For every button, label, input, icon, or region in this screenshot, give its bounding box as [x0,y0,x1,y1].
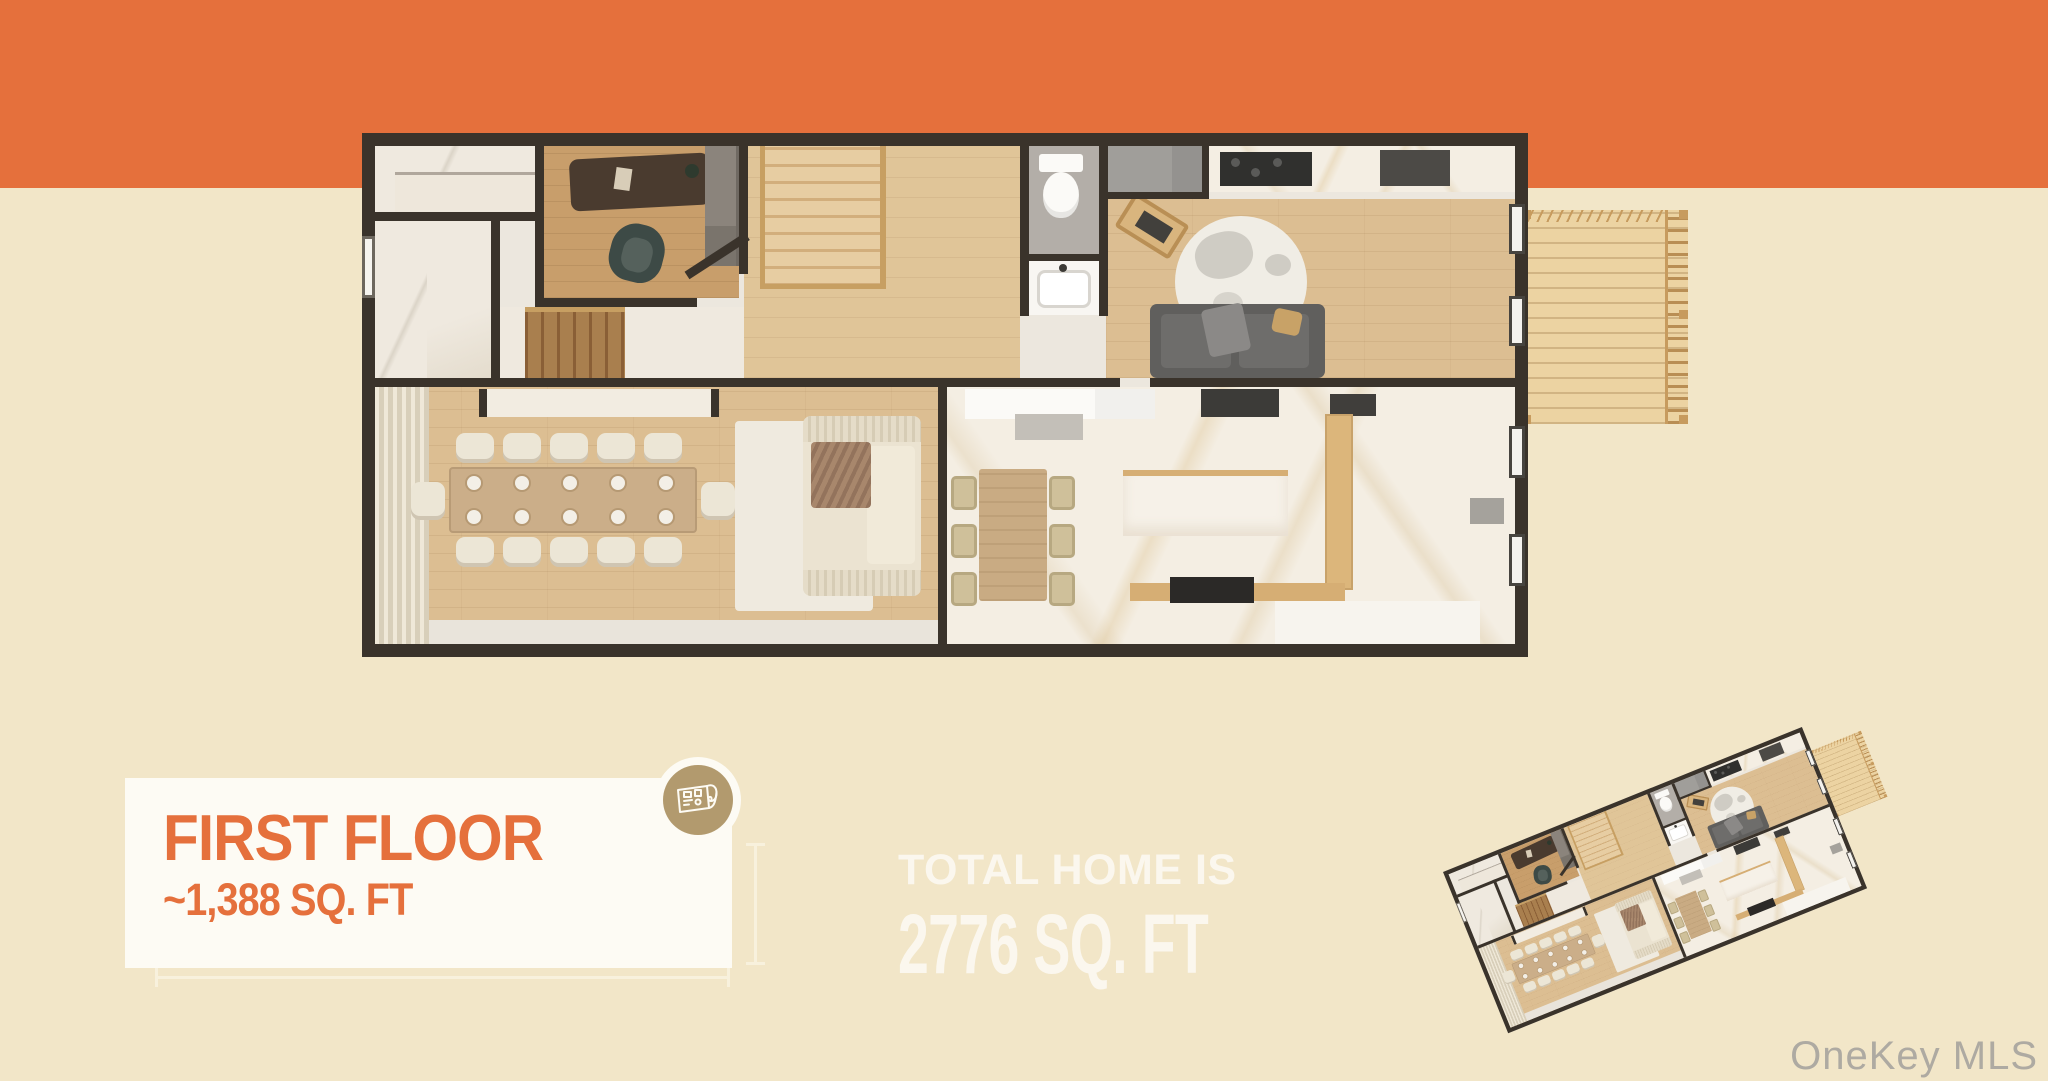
dining-chair [503,433,541,463]
closet [1106,146,1202,192]
dining-chair [456,433,494,463]
dining-chair [644,433,682,463]
toilet-tank [1039,154,1083,172]
sofa-blanket [811,442,871,508]
kitchen-chair [951,524,977,558]
dining-chair [597,537,635,567]
kitchen-table [979,469,1047,601]
kitchen-chair [1049,524,1075,558]
floor-plan [362,133,1528,657]
kitchen-chair [951,572,977,606]
entry-window [362,236,375,298]
sofa-pillow [1746,810,1757,819]
blueprint-badge [655,757,741,843]
dining-chair [550,433,588,463]
office-desk [569,152,712,211]
desk-plant [685,164,699,178]
wall-tv [1470,498,1504,524]
desk-paper [614,167,633,191]
dining-chair [597,433,635,463]
total-home-label: TOTAL HOME IS [898,846,1237,895]
main-divider-wall [375,378,1120,387]
deck-top-rail [1522,210,1668,222]
dining-walkway [429,620,938,644]
deck [1522,210,1688,424]
bath-faucet [1059,264,1067,272]
kitchen-window [1509,534,1525,586]
deck-top-rail [1810,733,1856,755]
kitchen-island [1123,476,1288,536]
stairs-down [525,312,625,378]
living-window [1509,296,1525,346]
floor-sqft: ~1,388 SQ. FT [163,874,412,926]
bath-sink [1037,270,1091,308]
kitchen-chair [1049,476,1075,510]
dining-chair [644,537,682,567]
marble-console [479,389,719,417]
kitchen-window [1509,426,1525,478]
stairs-banister [880,146,886,288]
kitchenette-sink [1380,150,1450,186]
floor-plan-group [362,133,1688,657]
kitchen-appliance [1201,389,1279,417]
utility-counter [395,172,535,212]
dining-chair [503,537,541,567]
island-sink [1330,394,1376,416]
white-counter [1275,601,1480,644]
dining-chair [456,537,494,567]
entry-marble-wall [427,221,491,378]
island-wood-side [1325,414,1353,590]
stairs-up [760,146,880,286]
cooktop-2 [1170,577,1254,603]
floor-title: FIRST FLOOR [163,804,543,872]
floor-plan [1443,727,1867,1033]
kitchen-chair [1049,572,1075,606]
dining-chair [411,482,445,520]
page-background: { "colors": { "background": "#f2e6c8", "… [0,0,2048,1081]
dining-chair [701,482,735,520]
floor-plan-group [1443,707,1916,1033]
kitchen-chair [951,476,977,510]
total-sqft: 2776 SQ. FT [898,896,1208,993]
toilet [1043,172,1079,218]
horizontal-dimension-line [155,976,730,979]
blueprint-icon [663,765,733,835]
living-window [1509,204,1525,254]
stairs-down-rail [525,307,625,312]
watermark: OneKey MLS [1790,1034,2038,1079]
dining-chair [550,537,588,567]
vertical-dimension-line [754,843,757,965]
